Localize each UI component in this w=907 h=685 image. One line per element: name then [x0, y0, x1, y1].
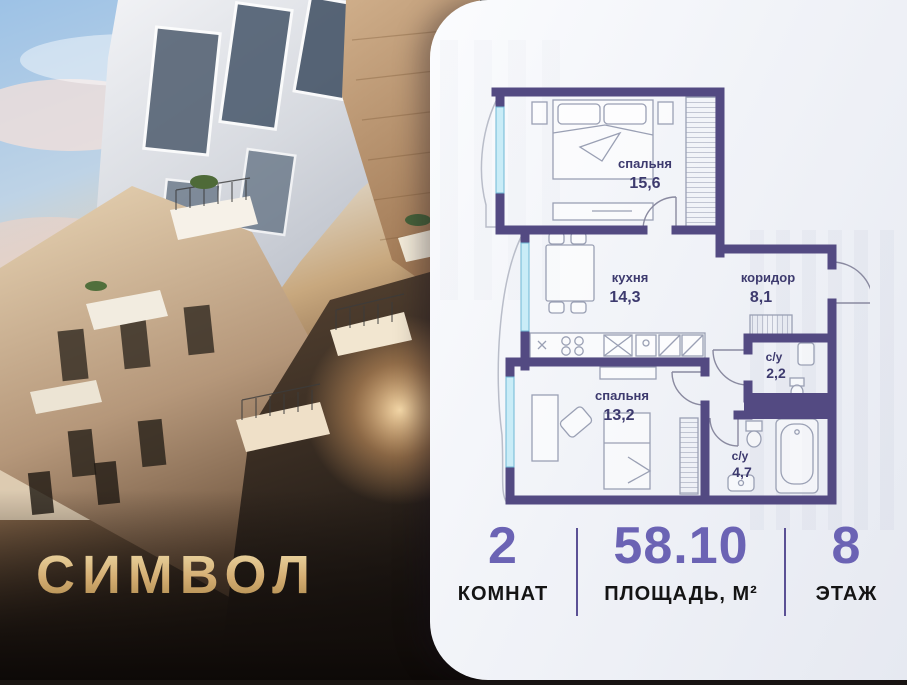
- room-bathroom-small: с/у 2,2: [766, 350, 786, 381]
- stat-area-value: 58.10: [613, 518, 748, 575]
- logo-text: СИМВОЛ: [36, 548, 317, 602]
- floor-plan: спальня 15,6 кухня 14,3 коридор 8,1 с/у …: [480, 75, 870, 525]
- stat-floor: 8 ЭТАЖ: [786, 518, 907, 628]
- stat-floor-value: 8: [832, 518, 862, 575]
- wall-block: [744, 393, 836, 419]
- svg-text:8,1: 8,1: [750, 289, 772, 306]
- svg-text:кухня: кухня: [612, 270, 649, 285]
- svg-text:14,3: 14,3: [609, 289, 640, 306]
- svg-text:с/у: с/у: [732, 449, 749, 463]
- svg-text:с/у: с/у: [766, 350, 783, 364]
- room-bathroom-large: с/у 4,7: [732, 449, 752, 480]
- svg-text:4,7: 4,7: [732, 464, 752, 480]
- stat-area-label: ПЛОЩАДЬ, М²: [604, 583, 758, 606]
- stat-rooms-label: КОМНАТ: [458, 583, 549, 606]
- stat-rooms: 2 КОМНАТ: [430, 518, 576, 628]
- svg-text:спальня: спальня: [618, 156, 672, 171]
- info-card: спальня 15,6 кухня 14,3 коридор 8,1 с/у …: [430, 0, 907, 680]
- svg-text:13,2: 13,2: [603, 407, 634, 424]
- svg-text:15,6: 15,6: [629, 175, 660, 192]
- stat-floor-label: ЭТАЖ: [816, 583, 878, 606]
- windows: [496, 107, 529, 467]
- apartment-stats: 2 КОМНАТ 58.10 ПЛОЩАДЬ, М² 8 ЭТАЖ: [430, 518, 907, 628]
- svg-text:спальня: спальня: [595, 388, 649, 403]
- stat-rooms-value: 2: [488, 518, 518, 575]
- furniture: [530, 97, 818, 494]
- svg-text:2,2: 2,2: [766, 365, 786, 381]
- stat-area: 58.10 ПЛОЩАДЬ, М²: [578, 518, 784, 628]
- room-kitchen: кухня 14,3: [609, 270, 648, 306]
- building-photo: СИМВОЛ: [0, 0, 480, 680]
- room-corridor: коридор 8,1: [741, 270, 795, 306]
- svg-text:коридор: коридор: [741, 270, 795, 285]
